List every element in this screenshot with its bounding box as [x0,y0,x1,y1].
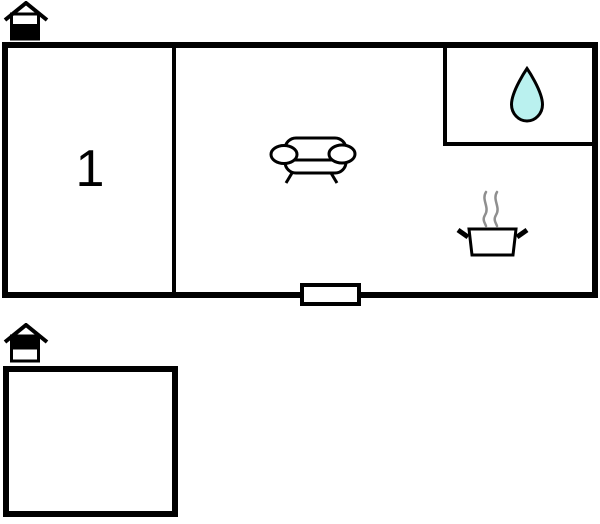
cooking-pot-icon [455,188,530,258]
steam-line [495,192,498,226]
water-drop-icon [508,66,546,124]
bathroom-wall-horizontal [443,142,592,146]
interior-wall [172,48,176,292]
upper-floor-plan [3,366,178,517]
room-1-label: 1 [60,141,120,197]
sofa-icon [262,130,357,185]
bathroom-wall-vertical [443,48,447,146]
water-drop-shape [512,69,543,122]
door-opening [300,283,361,306]
house-upper-floor-icon [3,323,49,364]
steam-line [484,192,487,226]
floor-plan-canvas: 1 [0,0,600,524]
house-ground-floor-icon [3,1,49,42]
